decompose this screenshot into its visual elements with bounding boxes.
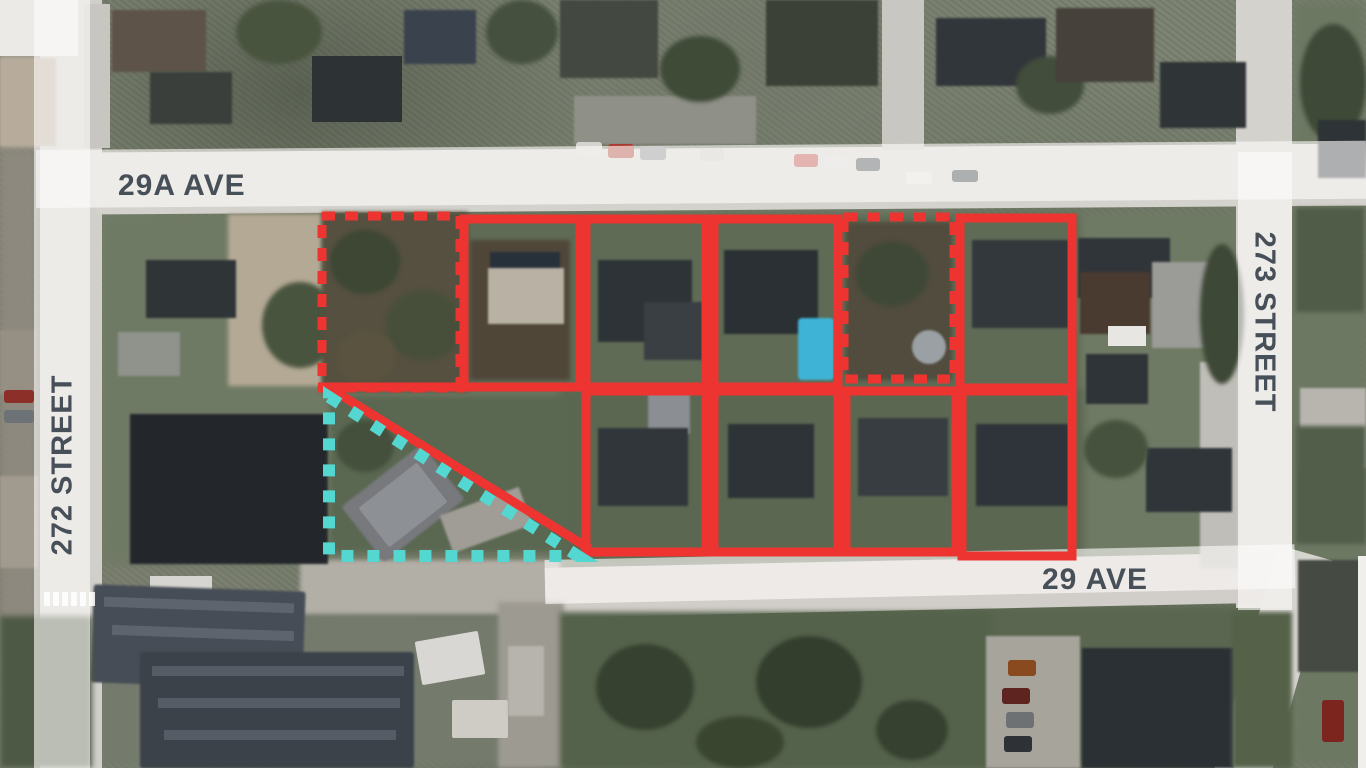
street-label-29-ave: 29 AVE [1042,565,1148,595]
street-label-29a-ave: 29A AVE [118,171,246,201]
parcel-outline-lot-5 [844,217,954,379]
parcel-outline-lot-9 [846,391,956,552]
parcel-outline-lot-8 [714,391,838,552]
parcel-overlay [0,0,1366,768]
assembly-boundary-diagonal [326,386,590,549]
parcel-outline-lot-4 [714,219,838,387]
parcel-outline-lot-2 [464,219,580,387]
excluded-lot-outline [329,397,578,556]
parcel-outline-lot-1 [322,216,460,388]
aerial-map: 29A AVE 272 STREET 273 STREET 29 AVE [0,0,1366,768]
street-label-272-street: 272 STREET [49,375,78,556]
parcel-outline-lot-10 [962,391,1072,556]
parcel-outline-lot-3 [586,219,706,387]
parcel-outline-lot-7 [586,391,706,552]
street-label-273-street: 273 STREET [1250,232,1279,413]
parcel-outline-lot-6 [960,218,1072,388]
